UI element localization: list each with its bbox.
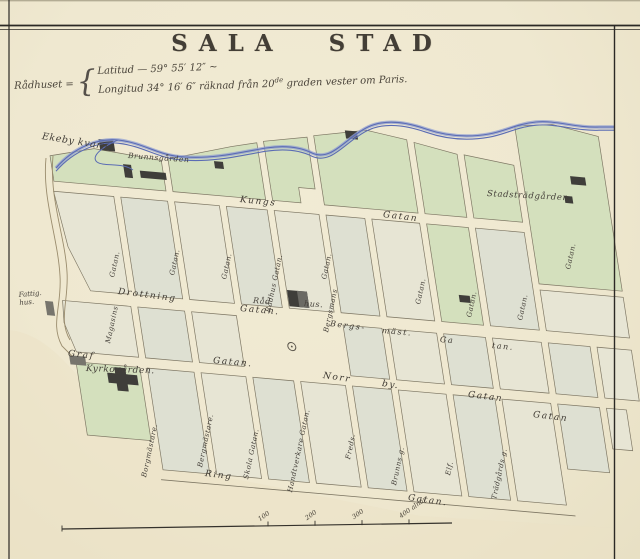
- fattighus-building: [45, 301, 55, 316]
- label-fattighus: Fattig. hus.: [18, 289, 42, 307]
- map-sheet: SALA STAD Rådhuset = { Latitud — 59° 55′…: [0, 0, 640, 559]
- map-title: SALA STAD: [0, 30, 614, 57]
- coords-name: Rådhuset =: [14, 79, 74, 92]
- coords-brace: {: [76, 64, 96, 100]
- brunnsgarden-building: [214, 161, 224, 169]
- label-radhus-2: hus.: [304, 299, 324, 309]
- street-bergsmastaregatan-4: tan.: [492, 341, 515, 352]
- street-bergsmastaregatan-3: Ga: [440, 335, 455, 345]
- latitude-line: Latitud — 59° 55′ 12″ ~: [97, 62, 217, 77]
- stadstradgarden-building: [570, 176, 586, 185]
